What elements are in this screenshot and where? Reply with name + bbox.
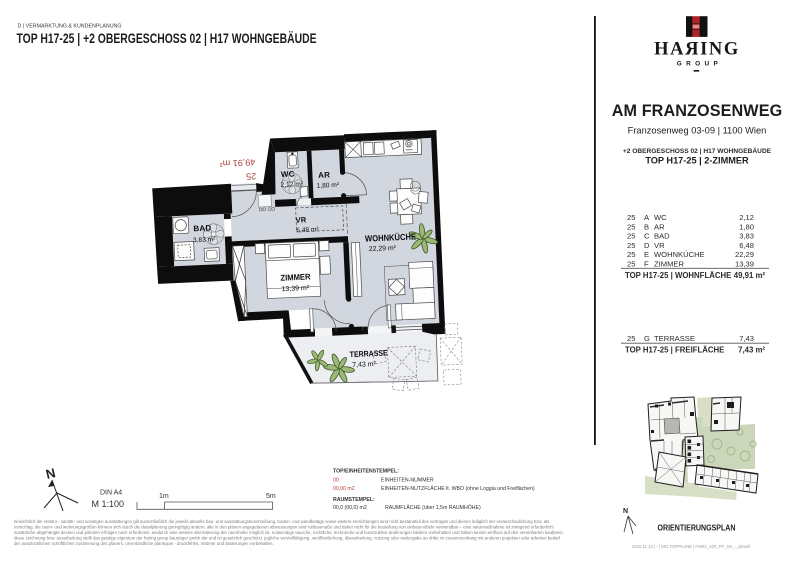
- svg-text:TERRASSE: TERRASSE: [349, 348, 388, 359]
- svg-text:TOP H17-25 | FREIFLÄCHE: TOP H17-25 | FREIFLÄCHE: [625, 346, 724, 355]
- svg-text:7,43 m²: 7,43 m²: [352, 361, 377, 369]
- svg-text:00: 00: [333, 477, 339, 483]
- svg-text:F: F: [644, 260, 649, 269]
- svg-text:25: 25: [627, 334, 635, 343]
- svg-text:G: G: [644, 334, 650, 343]
- svg-text:ZIMMER: ZIMMER: [280, 271, 310, 282]
- svg-text:7,43 m²: 7,43 m²: [738, 346, 765, 355]
- svg-text:VR: VR: [654, 241, 665, 250]
- svg-text:TOP H17-25 | WOHNFLÄCHE: TOP H17-25 | WOHNFLÄCHE: [625, 271, 731, 280]
- svg-text:00,00 m2: 00,00 m2: [333, 486, 355, 492]
- svg-text:zusätzliche abgehängte decken: zusätzliche abgehängte decken und pöleri…: [14, 530, 564, 535]
- svg-text:WC: WC: [281, 169, 295, 179]
- svg-text:N: N: [623, 508, 628, 515]
- svg-text:WC: WC: [654, 213, 667, 222]
- svg-text:TOP H17-25 | +2 OBERGESCHOSS 0: TOP H17-25 | +2 OBERGESCHOSS 02 | H17 WO…: [17, 31, 317, 46]
- svg-text:2,12 m²: 2,12 m²: [280, 181, 303, 189]
- svg-text:WOHNKÜCHE: WOHNKÜCHE: [654, 250, 705, 259]
- svg-text:3,83: 3,83: [739, 232, 754, 241]
- svg-text:+2 OBERGESCHOSS 02 | H17 WOHNG: +2 OBERGESCHOSS 02 | H17 WOHNGEBÄUDE: [623, 147, 772, 155]
- svg-text:BAD: BAD: [193, 224, 211, 234]
- svg-text:22,29: 22,29: [735, 250, 754, 259]
- svg-text:7,43: 7,43: [739, 334, 754, 343]
- svg-text:2025 11 13 | - | D01 TOPPLANE: 2025 11 13 | - | D01 TOPPLANE | FW02_A00…: [632, 544, 750, 549]
- svg-text:VR: VR: [295, 215, 307, 224]
- svg-text:25: 25: [627, 232, 635, 241]
- svg-text:13,39 m²: 13,39 m²: [281, 285, 310, 293]
- svg-text:EINHEITEN-NUTZFLÄCHE lt. WBO (: EINHEITEN-NUTZFLÄCHE lt. WBO (ohne Loggi…: [381, 485, 535, 492]
- svg-text:49,91 m²: 49,91 m²: [220, 157, 256, 169]
- svg-text:der ausdrücklichen schriftlich: der ausdrücklichen schriftlichen zustimm…: [14, 541, 274, 546]
- svg-text:D | VERMARKTUNG & KUNDENPLANUN: D | VERMARKTUNG & KUNDENPLANUNG: [18, 24, 122, 30]
- svg-text:DIN A4: DIN A4: [100, 490, 122, 497]
- svg-text:D: D: [644, 241, 650, 250]
- svg-text:ORIENTIERUNGSPLAN: ORIENTIERUNGSPLAN: [658, 523, 736, 533]
- svg-text:6,48 m²: 6,48 m²: [296, 226, 319, 234]
- svg-text:25: 25: [627, 222, 635, 231]
- svg-text:AM FRANZOSENWEG: AM FRANZOSENWEG: [612, 102, 783, 120]
- svg-text:M 1:100: M 1:100: [92, 499, 125, 509]
- svg-text:ZIMMER: ZIMMER: [654, 260, 684, 269]
- svg-text:hinsichtlich der elektro-, san: hinsichtlich der elektro-, sanitär- und …: [14, 519, 550, 524]
- svg-text:EINHEITEN-NUMMER: EINHEITEN-NUMMER: [381, 477, 434, 483]
- svg-text:AR: AR: [318, 170, 330, 180]
- svg-text:25: 25: [627, 250, 635, 259]
- svg-text:E: E: [644, 250, 649, 259]
- svg-text:Franzosenweg 03-09 | 1100 Wien: Franzosenweg 03-09 | 1100 Wien: [628, 126, 767, 136]
- svg-text:HAЯING: HAЯING: [654, 40, 740, 60]
- svg-text:RAUMSTEMPEL:: RAUMSTEMPEL:: [333, 497, 375, 503]
- svg-text:B: B: [644, 222, 649, 231]
- svg-text:2,12: 2,12: [739, 213, 754, 222]
- svg-text:GROUP: GROUP: [677, 61, 722, 68]
- svg-text:AR: AR: [654, 222, 665, 231]
- svg-text:TOP H17-25 | 2-ZIMMER: TOP H17-25 | 2-ZIMMER: [645, 155, 749, 165]
- svg-text:25: 25: [627, 260, 635, 269]
- svg-text:1,80: 1,80: [739, 222, 754, 231]
- svg-text:49,91 m²: 49,91 m²: [734, 271, 766, 280]
- svg-text:22,29 m²: 22,29 m²: [369, 245, 397, 253]
- svg-text:25: 25: [627, 241, 635, 250]
- svg-text:BAD: BAD: [654, 232, 670, 241]
- svg-text:A: A: [644, 213, 650, 222]
- svg-text:C: C: [644, 232, 650, 241]
- svg-text:6,48: 6,48: [739, 241, 754, 250]
- svg-text:00,0 (00,0) m2: 00,0 (00,0) m2: [333, 505, 367, 511]
- svg-text:3,83 m²: 3,83 m²: [193, 236, 216, 244]
- svg-text:25: 25: [627, 213, 635, 222]
- svg-text:TERRASSE: TERRASSE: [654, 334, 695, 343]
- svg-text:5m: 5m: [266, 493, 276, 500]
- svg-text:N: N: [44, 465, 57, 482]
- svg-text:TOP/EINHEITENSTEMPEL:: TOP/EINHEITENSTEMPEL:: [333, 469, 399, 475]
- svg-text:25: 25: [246, 171, 256, 181]
- svg-text:1,80 m²: 1,80 m²: [317, 182, 340, 190]
- svg-text:RAUMFLÄCHE (über 1,5m RAUMHÖHE: RAUMFLÄCHE (über 1,5m RAUMHÖHE): [385, 504, 481, 511]
- svg-text:1m: 1m: [159, 493, 169, 500]
- svg-text:diese zeichnung bzw. ausarbeit: diese zeichnung bzw. ausarbeitung stellt…: [14, 536, 561, 541]
- svg-text:vorschlag. die raum- und wohnu: vorschlag. die raum- und wohnungsgrößen …: [14, 525, 554, 530]
- svg-text:13,39: 13,39: [735, 260, 754, 269]
